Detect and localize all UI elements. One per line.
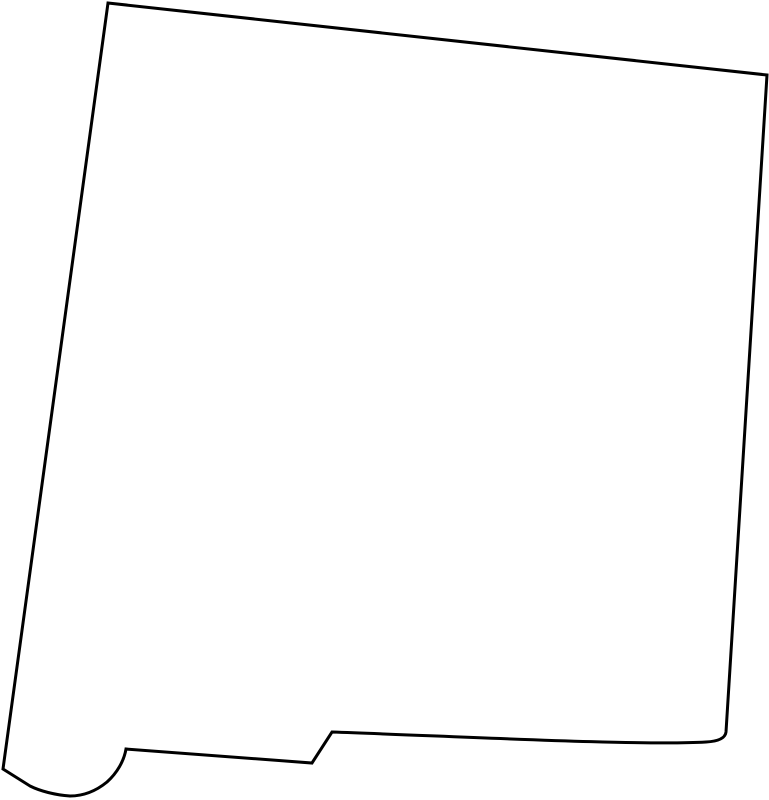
map-svg bbox=[0, 0, 769, 800]
map-canvas bbox=[0, 0, 769, 800]
new-mexico-outline bbox=[3, 3, 767, 796]
